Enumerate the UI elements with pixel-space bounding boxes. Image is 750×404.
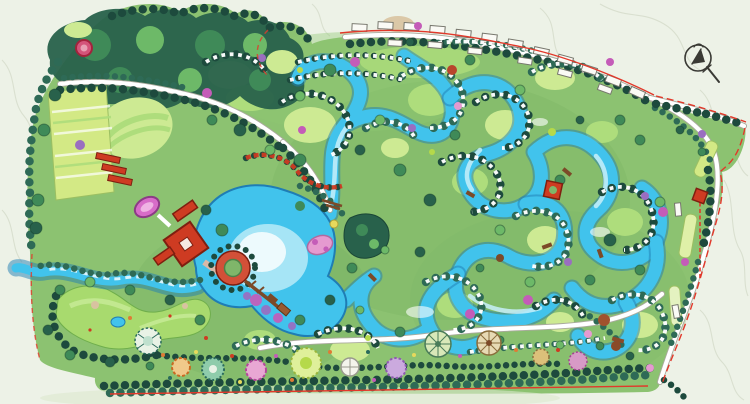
wheel-plaza	[425, 331, 451, 357]
masterplan-drawing	[0, 0, 750, 404]
wheel-plaza	[477, 331, 501, 355]
masterplan-canvas	[0, 0, 750, 404]
